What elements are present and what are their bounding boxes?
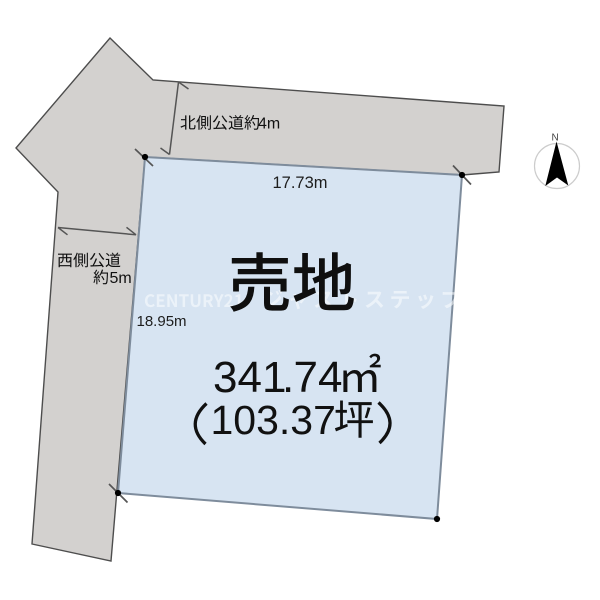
svg-text:341: 341 xyxy=(213,353,286,402)
svg-text:N: N xyxy=(552,133,559,144)
svg-text:103.37: 103.37 xyxy=(211,397,336,443)
svg-text:74: 74 xyxy=(294,353,343,402)
svg-text:17.73m: 17.73m xyxy=(273,174,328,192)
svg-text:.: . xyxy=(282,353,294,402)
svg-text:18.95m: 18.95m xyxy=(137,313,187,330)
svg-text:5m: 5m xyxy=(110,270,132,287)
svg-text:4m: 4m xyxy=(258,116,280,133)
